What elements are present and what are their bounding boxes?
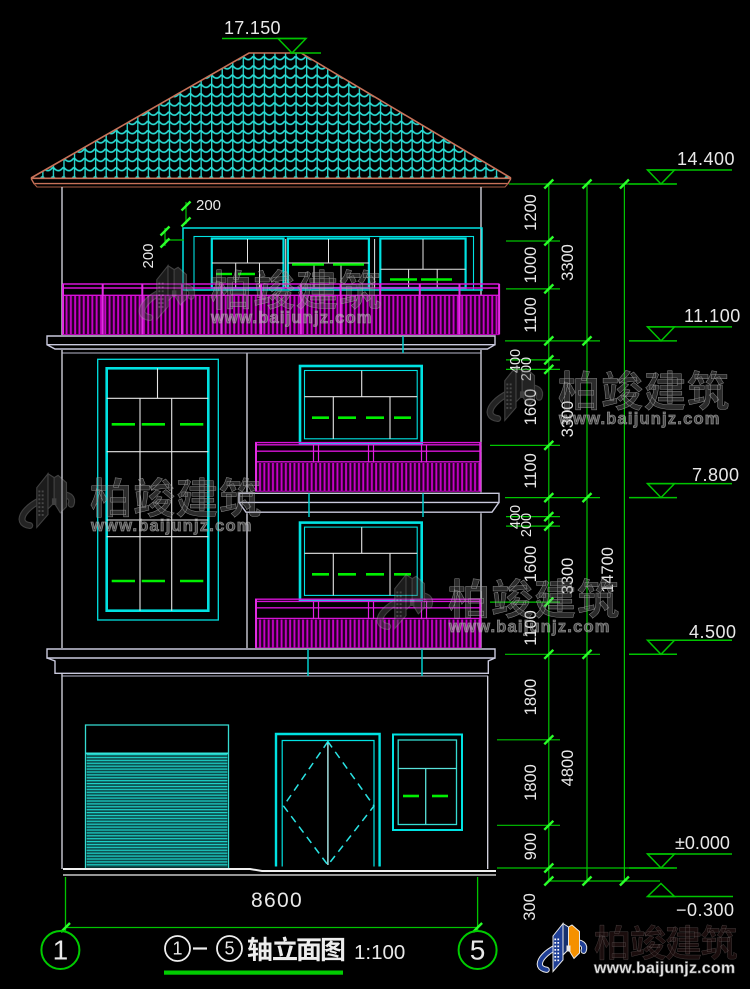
svg-text:www.baijunjz.com: www.baijunjz.com [210, 309, 373, 327]
svg-text:300: 300 [521, 893, 539, 921]
svg-text:5: 5 [470, 935, 486, 966]
svg-text:3300: 3300 [559, 244, 577, 281]
svg-text:1200: 1200 [522, 194, 540, 231]
svg-text:±0.000: ±0.000 [675, 833, 730, 853]
svg-text:5: 5 [224, 939, 234, 959]
svg-text:7.800: 7.800 [692, 465, 740, 485]
svg-text:4.500: 4.500 [689, 622, 737, 642]
svg-text:4800: 4800 [559, 750, 577, 787]
svg-text:900: 900 [522, 833, 540, 861]
svg-text:14.400: 14.400 [677, 149, 735, 169]
svg-text:200: 200 [140, 243, 157, 268]
svg-text:200: 200 [519, 513, 535, 537]
svg-text:1100: 1100 [522, 297, 540, 332]
svg-text:1: 1 [172, 939, 182, 959]
svg-text:1000: 1000 [522, 247, 540, 284]
svg-text:8600: 8600 [251, 889, 303, 912]
svg-text:1800: 1800 [522, 679, 540, 716]
svg-text:−0.300: −0.300 [676, 900, 735, 920]
svg-text:1600: 1600 [522, 546, 540, 583]
svg-text:200: 200 [196, 197, 221, 214]
svg-text:11.100: 11.100 [684, 306, 741, 326]
svg-text:1: 1 [53, 935, 69, 966]
svg-text:1800: 1800 [522, 764, 540, 801]
svg-text:17.150: 17.150 [224, 18, 281, 38]
svg-text:www.baijunjz.com: www.baijunjz.com [593, 960, 735, 977]
svg-text:1:100: 1:100 [354, 941, 405, 964]
svg-text:1100: 1100 [522, 453, 540, 488]
